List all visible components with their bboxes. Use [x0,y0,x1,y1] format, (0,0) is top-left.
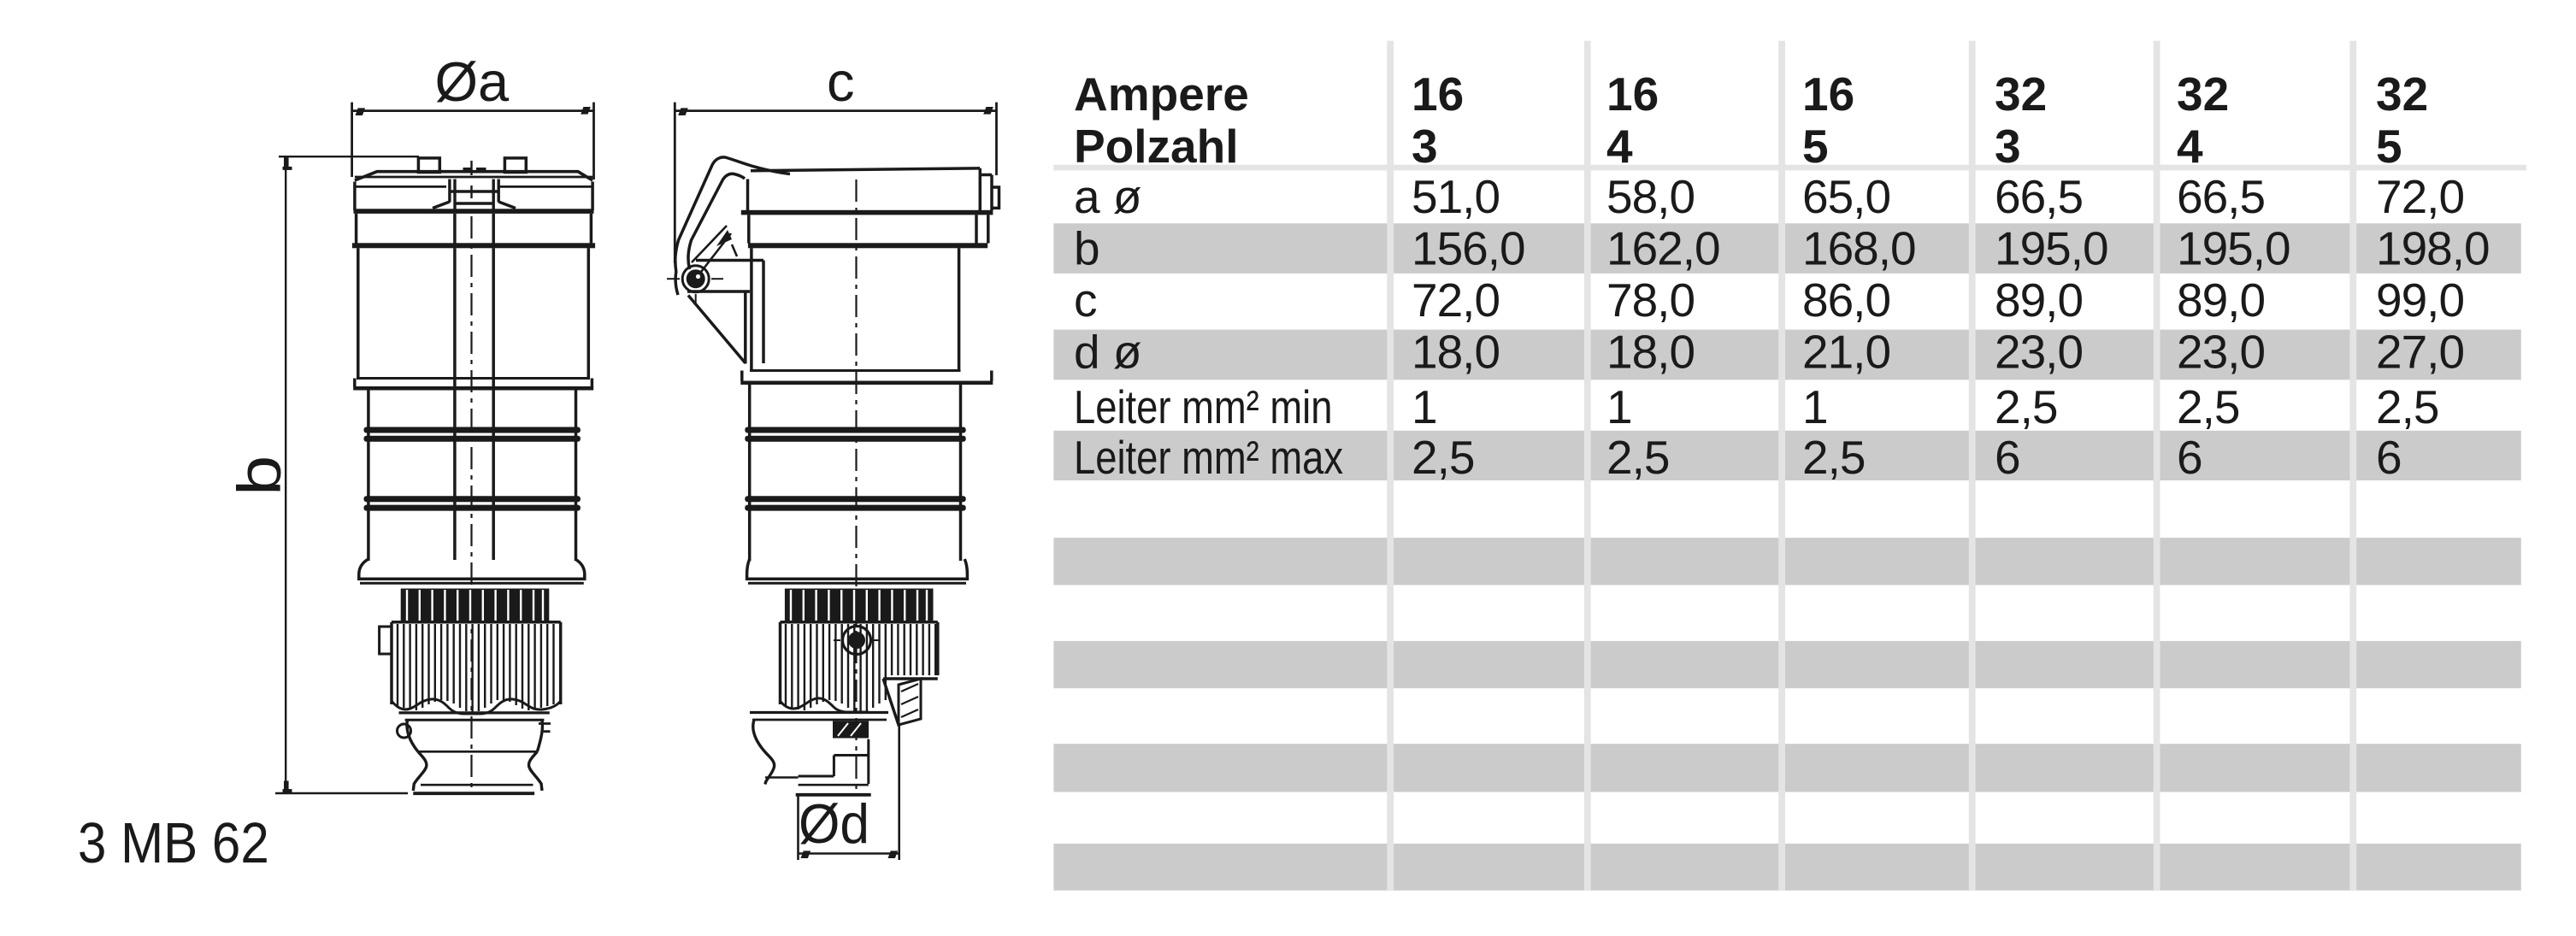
svg-text:1: 1 [1606,380,1632,433]
svg-text:2,5: 2,5 [2376,380,2438,433]
svg-text:d ø: d ø [1074,326,1141,379]
svg-text:162,0: 162,0 [1606,222,1720,275]
svg-text:72,0: 72,0 [2376,170,2464,223]
svg-text:2,5: 2,5 [1412,431,1474,484]
svg-text:c: c [1074,274,1098,327]
svg-text:a ø: a ø [1074,170,1141,223]
svg-text:66,5: 66,5 [2177,170,2265,223]
svg-text:58,0: 58,0 [1606,170,1695,223]
svg-text:3: 3 [1995,120,2021,173]
svg-text:b: b [1074,222,1100,275]
svg-text:1: 1 [1412,380,1437,433]
svg-text:72,0: 72,0 [1412,274,1500,327]
svg-text:168,0: 168,0 [1802,222,1916,275]
svg-text:1: 1 [1802,380,1828,433]
svg-text:66,5: 66,5 [1995,170,2083,223]
svg-text:23,0: 23,0 [2177,326,2265,379]
svg-text:89,0: 89,0 [2177,274,2265,327]
svg-text:51,0: 51,0 [1412,170,1500,223]
svg-text:4: 4 [1606,120,1633,173]
svg-text:16: 16 [1606,68,1659,121]
svg-text:99,0: 99,0 [2376,274,2464,327]
svg-text:32: 32 [1995,68,2047,121]
svg-text:c: c [827,50,855,113]
svg-text:6: 6 [2177,431,2202,484]
svg-text:195,0: 195,0 [2177,222,2290,275]
svg-text:6: 6 [2376,431,2402,484]
svg-text:5: 5 [2376,120,2402,173]
svg-text:2,5: 2,5 [1802,431,1865,484]
svg-text:86,0: 86,0 [1802,274,1890,327]
svg-text:27,0: 27,0 [2376,326,2464,379]
svg-text:Polzahl: Polzahl [1074,120,1239,173]
svg-text:b: b [226,456,294,496]
svg-text:198,0: 198,0 [2376,222,2490,275]
svg-text:156,0: 156,0 [1412,222,1525,275]
svg-text:32: 32 [2177,68,2229,121]
svg-text:23,0: 23,0 [1995,326,2083,379]
svg-text:2,5: 2,5 [1995,380,2057,433]
svg-text:65,0: 65,0 [1802,170,1890,223]
svg-text:Ampere: Ampere [1074,68,1249,121]
svg-text:195,0: 195,0 [1995,222,2108,275]
svg-text:Øa: Øa [435,50,510,113]
svg-text:5: 5 [1802,120,1829,173]
svg-text:2,5: 2,5 [1606,431,1669,484]
svg-text:4: 4 [2177,120,2203,173]
svg-text:3: 3 [1412,120,1438,173]
svg-text:21,0: 21,0 [1802,326,1890,379]
svg-text:16: 16 [1412,68,1464,121]
svg-text:Leiter mm² max: Leiter mm² max [1074,431,1343,484]
svg-text:6: 6 [1995,431,2020,484]
svg-text:Ød: Ød [799,793,869,856]
svg-text:Leiter mm² min: Leiter mm² min [1074,380,1332,433]
svg-text:78,0: 78,0 [1606,274,1695,327]
svg-text:18,0: 18,0 [1412,326,1500,379]
svg-text:2,5: 2,5 [2177,380,2239,433]
svg-text:89,0: 89,0 [1995,274,2083,327]
svg-text:32: 32 [2376,68,2428,121]
svg-text:18,0: 18,0 [1606,326,1695,379]
svg-text:16: 16 [1802,68,1854,121]
svg-text:3 MB 62: 3 MB 62 [78,811,269,875]
